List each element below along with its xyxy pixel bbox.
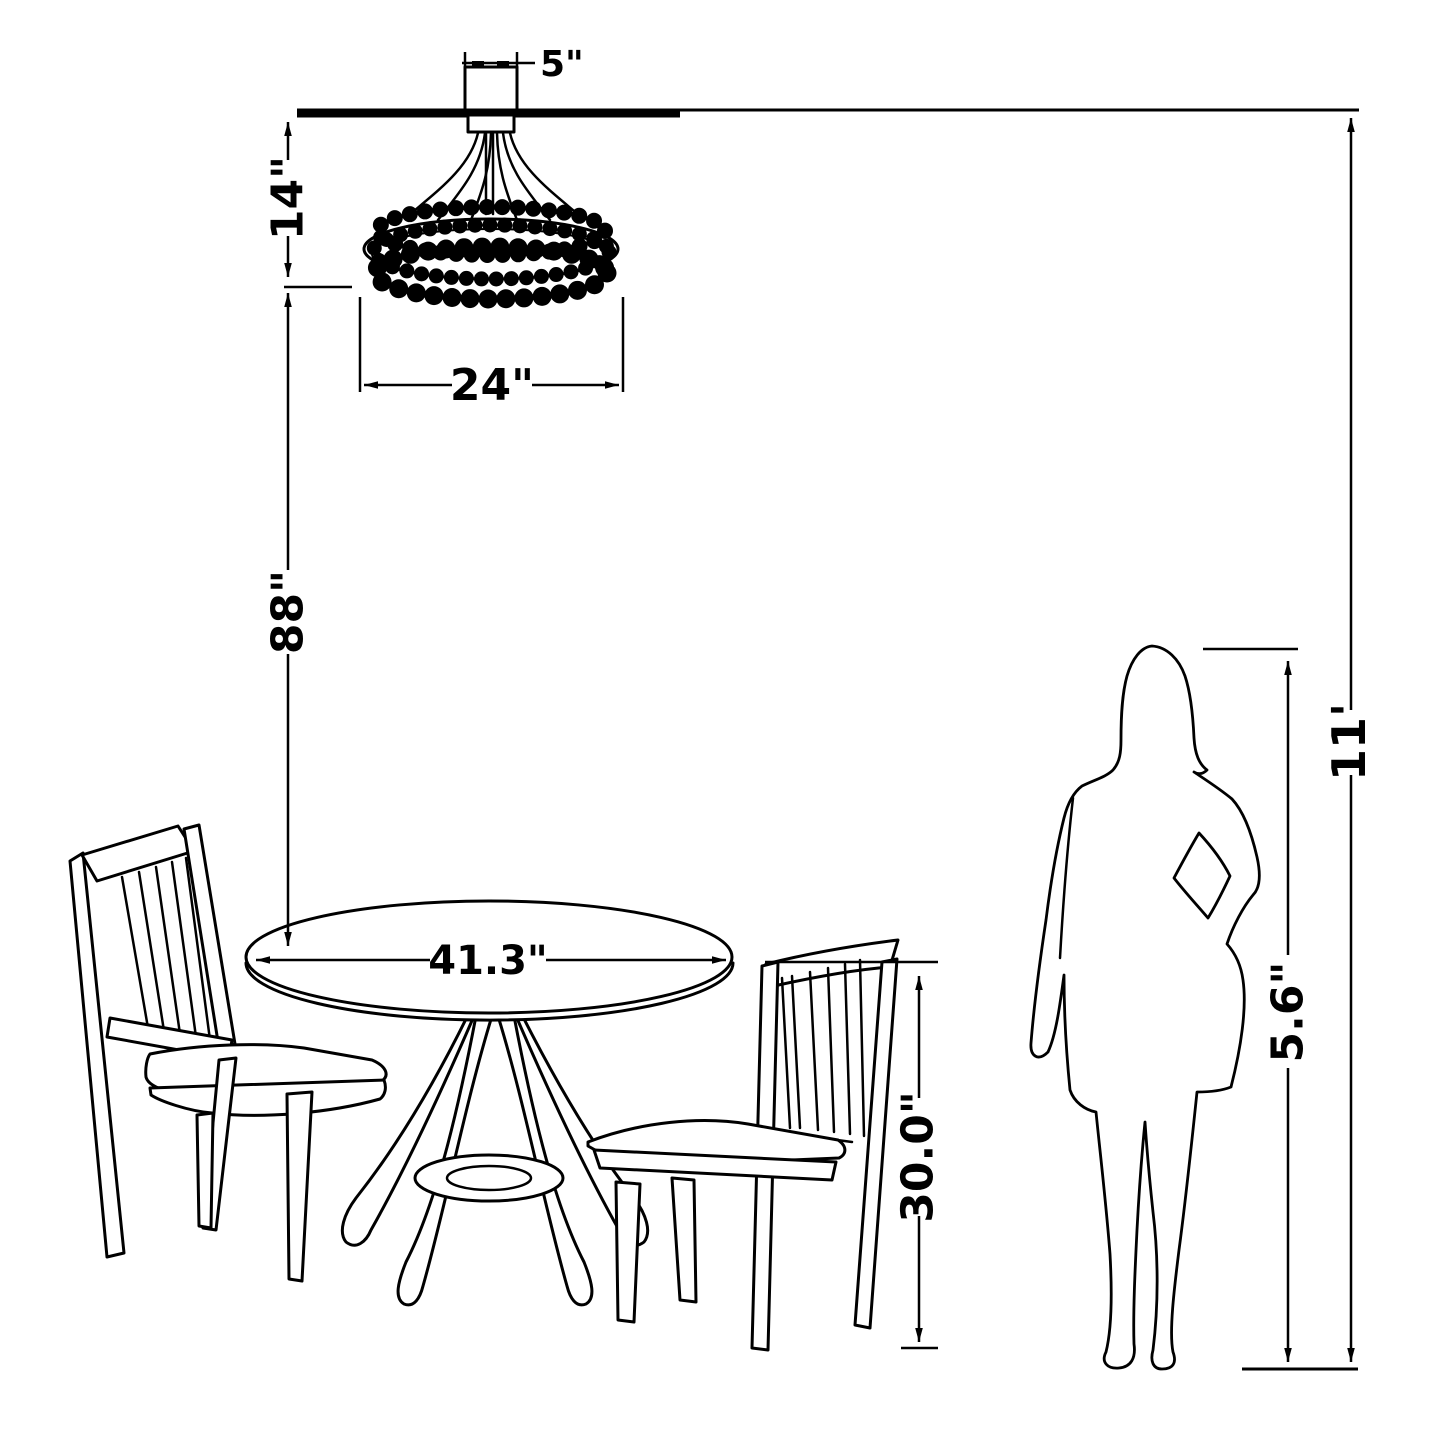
- dim-label-fixture-diameter: 24": [450, 360, 534, 411]
- dimension-diagram: 5" 14" 24" 88" 41.3": [0, 0, 1445, 1445]
- chair-leg: [616, 1182, 640, 1322]
- diagram-canvas: 5" 14" 24" 88" 41.3": [0, 0, 1445, 1445]
- chair-left: [70, 825, 386, 1281]
- chair-back-post: [184, 825, 235, 1048]
- chair-leg: [287, 1092, 312, 1281]
- dim-fixture-diameter: 24": [360, 297, 623, 411]
- dim-label-person-height: 5.6": [1262, 962, 1313, 1063]
- chair-leg: [672, 1178, 696, 1302]
- canopy-bracket: [468, 115, 514, 132]
- person-outline: [1031, 646, 1259, 1369]
- ceiling-line: [297, 110, 1359, 113]
- chandelier-body: [364, 115, 618, 299]
- canopy: [465, 67, 517, 113]
- dim-label-canopy-width: 5": [540, 44, 584, 85]
- dim-fixture-height: 14": [262, 122, 352, 287]
- dim-label-fixture-height: 14": [262, 156, 313, 240]
- chair-slats: [778, 960, 864, 1142]
- dim-label-table-diameter: 41.3": [428, 938, 548, 984]
- dim-label-fixture-to-table: 88": [262, 570, 313, 654]
- chair-back-post: [70, 853, 124, 1257]
- dim-ceiling-height: 11': [1322, 118, 1376, 1362]
- dim-fixture-to-table: 88": [262, 293, 313, 946]
- bead-ring: [364, 207, 618, 299]
- chandelier: [465, 61, 517, 113]
- chair-leg: [197, 1113, 213, 1228]
- dim-label-table-height: 30.0": [892, 1091, 943, 1222]
- dim-label-ceiling-height: 11': [1322, 703, 1376, 781]
- chair-apron: [150, 1080, 385, 1115]
- person-silhouette: [1031, 646, 1259, 1369]
- base-ring: [415, 1155, 563, 1201]
